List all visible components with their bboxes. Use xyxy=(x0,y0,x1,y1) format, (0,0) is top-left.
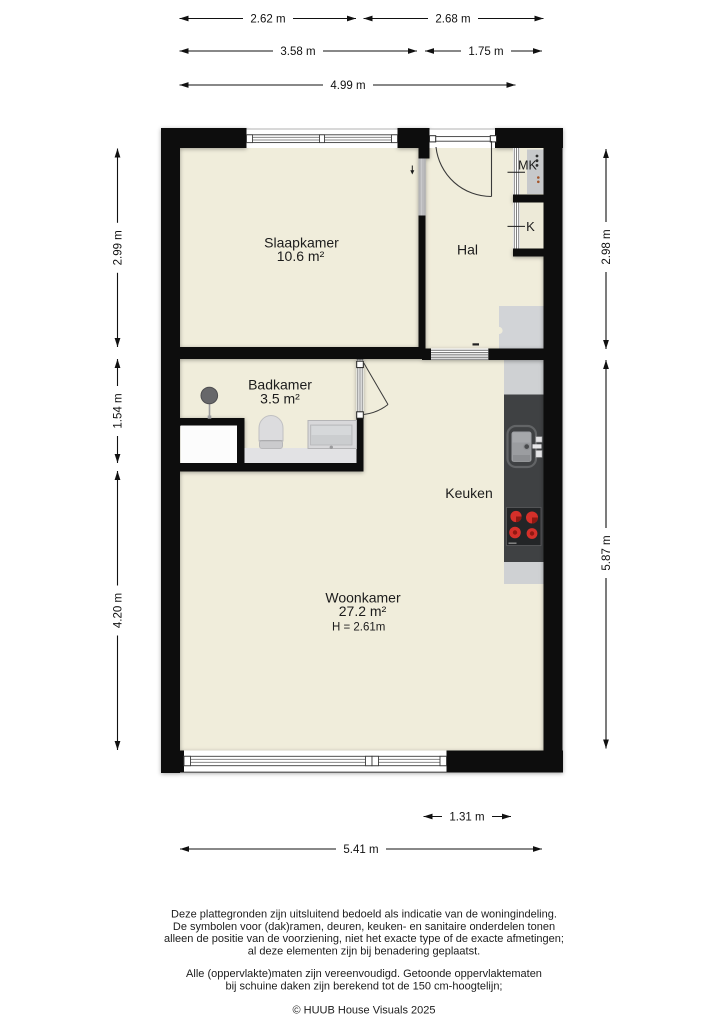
svg-text:H = 2.61m: H = 2.61m xyxy=(332,622,385,634)
svg-text:© HUUB House Visuals 2025: © HUUB House Visuals 2025 xyxy=(292,1005,435,1017)
svg-text:1.54 m: 1.54 m xyxy=(113,393,125,428)
svg-text:2.99 m: 2.99 m xyxy=(113,230,125,265)
svg-text:3.58 m: 3.58 m xyxy=(280,46,315,58)
svg-text:2.62 m: 2.62 m xyxy=(250,14,285,26)
svg-text:al deze elementen zijn bij ben: al deze elementen zijn bij benadering ge… xyxy=(248,945,480,957)
svg-text:4.20 m: 4.20 m xyxy=(113,593,125,628)
svg-text:3.5 m²: 3.5 m² xyxy=(260,390,300,406)
svg-text:Keuken: Keuken xyxy=(445,485,492,501)
svg-text:4.99 m: 4.99 m xyxy=(330,80,365,92)
svg-text:2.98 m: 2.98 m xyxy=(601,229,613,264)
svg-text:K: K xyxy=(526,219,535,234)
svg-text:Deze plattegronden zijn uitslu: Deze plattegronden zijn uitsluitend bedo… xyxy=(171,909,557,921)
svg-text:10.6 m²: 10.6 m² xyxy=(277,248,325,264)
svg-text:Alle (oppervlakte)maten zijn v: Alle (oppervlakte)maten zijn vereenvoudi… xyxy=(186,968,542,980)
svg-text:alleen de positie van de voorz: alleen de positie van de voorziening, ni… xyxy=(164,933,564,945)
svg-text:MK: MK xyxy=(518,158,537,172)
svg-text:5.87 m: 5.87 m xyxy=(601,535,613,570)
svg-text:Hal: Hal xyxy=(457,242,478,258)
svg-text:5.41 m: 5.41 m xyxy=(343,844,378,856)
svg-text:27.2 m²: 27.2 m² xyxy=(339,603,387,619)
svg-text:1.31 m: 1.31 m xyxy=(449,812,484,824)
svg-text:bij schuine daken zijn bereken: bij schuine daken zijn berekend tot de 1… xyxy=(225,981,502,993)
svg-text:1.75 m: 1.75 m xyxy=(468,46,503,58)
svg-text:De symbolen voor (dak)ramen, d: De symbolen voor (dak)ramen, deuren, keu… xyxy=(173,921,555,933)
svg-text:2.68 m: 2.68 m xyxy=(435,14,470,26)
